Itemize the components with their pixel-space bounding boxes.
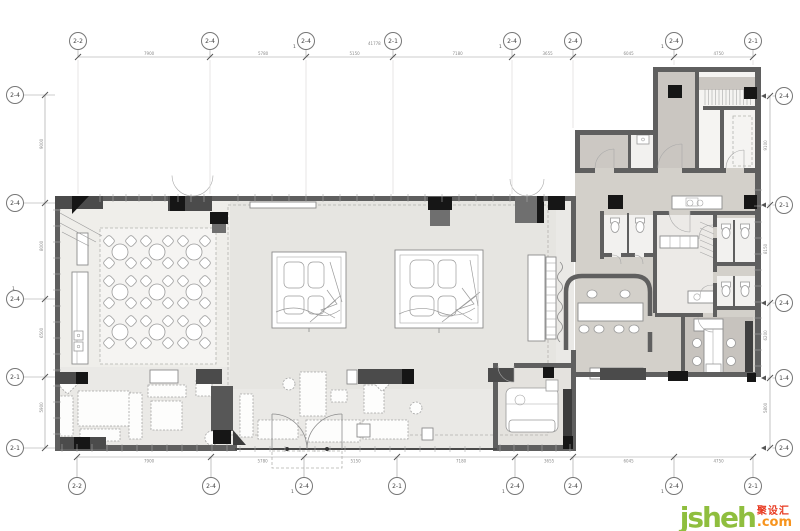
dim-left: 6500 bbox=[39, 327, 44, 338]
round-table bbox=[186, 244, 202, 260]
grid-bubble-label: 2-4 bbox=[10, 92, 20, 99]
grid-bubble: 2-4 bbox=[565, 33, 582, 61]
grid-bubble-label: 2-1 bbox=[10, 374, 20, 381]
chair bbox=[693, 339, 702, 348]
grid-bubble: 2-1 bbox=[745, 33, 762, 61]
band-room-a-floor bbox=[579, 135, 628, 168]
leader-arrow bbox=[761, 301, 766, 306]
entrance-mat-dashed bbox=[272, 451, 342, 468]
grid-bubble: 2-4 bbox=[7, 87, 56, 104]
grid-bubble: 2-4 bbox=[761, 440, 793, 457]
chair bbox=[594, 325, 604, 333]
chair bbox=[693, 357, 702, 366]
dim-right: 8150 bbox=[763, 243, 768, 254]
toilet-wc bbox=[741, 224, 750, 239]
grid-bubble: 2-41 bbox=[291, 454, 313, 495]
dim-right: 6200 bbox=[763, 330, 768, 341]
vip-side-table bbox=[546, 380, 558, 391]
grid-bubble: 2-41 bbox=[499, 33, 521, 61]
door-pivot bbox=[285, 447, 289, 451]
grid-bubble-label: 2-4 bbox=[568, 38, 578, 45]
grid-bubble-label: 2-4 bbox=[779, 300, 789, 307]
grid-bubble: 2-1 bbox=[745, 454, 762, 495]
vip-room-furniture bbox=[506, 380, 558, 432]
dim-top: 6045 bbox=[624, 51, 635, 56]
watermark: jsheh 聚设汇 .com bbox=[680, 502, 792, 529]
grid-bubble-label: 2-4 bbox=[507, 38, 517, 45]
grid-bubble-label: 2-4 bbox=[568, 483, 578, 490]
grid-bubble: 2-4 bbox=[202, 33, 219, 61]
floor-box bbox=[422, 428, 433, 440]
grid-bubble: 2-4 bbox=[761, 295, 793, 312]
dim-bottom: 7900 bbox=[144, 459, 155, 464]
lounge-item bbox=[148, 385, 186, 397]
grid-bubble: 2-41 bbox=[7, 286, 56, 308]
chair bbox=[614, 325, 624, 333]
grid-bubble-sub: 1 bbox=[293, 44, 296, 50]
grid-bubble-label: 2-2 bbox=[73, 38, 83, 45]
toilet-wc bbox=[722, 224, 731, 239]
wc-bowl bbox=[741, 286, 749, 297]
watermark-right: 聚设汇 .com bbox=[757, 502, 792, 529]
grid-bubble-label: 2-4 bbox=[301, 38, 311, 45]
grid-bubble: 2-1 bbox=[389, 454, 406, 495]
grid-bubble-label: 2-4 bbox=[779, 93, 789, 100]
dim-top: 5780 bbox=[258, 51, 269, 56]
dim-top: 5150 bbox=[350, 51, 361, 56]
round-table bbox=[112, 284, 128, 300]
grid-bubble: 2-2 bbox=[69, 454, 86, 495]
dim-overall: 41778 bbox=[368, 41, 381, 46]
dim-right: 5800 bbox=[763, 402, 768, 413]
floor-plan-page: 7900578051507180365560454750790057805150… bbox=[0, 0, 800, 531]
round-table bbox=[149, 244, 165, 260]
wc-bowl bbox=[722, 228, 730, 239]
dim-bottom: 7180 bbox=[456, 459, 467, 464]
chair bbox=[727, 339, 736, 348]
grid-bubble: 2-41 bbox=[661, 33, 683, 61]
grid-bubble-label: 2-4 bbox=[669, 38, 679, 45]
toilet-wc bbox=[722, 282, 731, 297]
round-table bbox=[149, 324, 165, 340]
dim-right: 9100 bbox=[763, 140, 768, 151]
lounge-item bbox=[300, 372, 326, 416]
grid-bubble-sub: 1 bbox=[499, 44, 502, 50]
band-fixture bbox=[637, 135, 649, 144]
grid-bubble: 2-2 bbox=[70, 33, 87, 61]
grid-bubble-label: 2-2 bbox=[72, 483, 82, 490]
grid-bubble-label: 2-4 bbox=[206, 483, 216, 490]
bar-outlet bbox=[74, 342, 83, 351]
island-detail bbox=[706, 364, 721, 373]
grid-bubble-label: 2-4 bbox=[10, 296, 20, 303]
bar-outlet bbox=[74, 331, 83, 340]
vanity-counter bbox=[660, 236, 698, 248]
grid-bubble-sub: 1 bbox=[12, 286, 15, 292]
round-table bbox=[186, 324, 202, 340]
round-table bbox=[186, 284, 202, 300]
lounge-item bbox=[258, 420, 298, 439]
wc-bowl bbox=[636, 222, 644, 233]
grid-bubble: 2-4 bbox=[761, 88, 793, 105]
dim-bottom: 5150 bbox=[351, 459, 362, 464]
dim-top: 7180 bbox=[453, 51, 464, 56]
floor-plan-drawing: 7900578051507180365560454750790057805150… bbox=[0, 0, 800, 531]
lounge-item bbox=[151, 401, 182, 430]
feature-square-2 bbox=[395, 250, 483, 333]
leader-arrow bbox=[761, 203, 766, 208]
dim-bottom: 4750 bbox=[714, 459, 725, 464]
dim-bottom: 5780 bbox=[258, 459, 269, 464]
chair bbox=[620, 290, 630, 298]
watermark-tld: .com bbox=[757, 517, 792, 529]
wc-bowl bbox=[611, 222, 619, 233]
chair bbox=[579, 325, 589, 333]
grid-bubble-label: 2-4 bbox=[10, 200, 20, 207]
dim-top: 7900 bbox=[144, 51, 155, 56]
chair bbox=[629, 325, 639, 333]
conference-table bbox=[578, 303, 643, 321]
dim-left: 5900 bbox=[39, 402, 44, 413]
round-table bbox=[112, 324, 128, 340]
grid-bubble: 2-4 bbox=[565, 454, 582, 495]
grid-bubble: 2-1 bbox=[761, 197, 793, 214]
grid-bubble: 1-4 bbox=[761, 370, 793, 387]
grid-bubble-label: 2-1 bbox=[10, 445, 20, 452]
dim-left: 9000 bbox=[39, 138, 44, 149]
dim-bottom: 6045 bbox=[624, 459, 635, 464]
wall-bench bbox=[250, 202, 316, 208]
round-table bbox=[112, 244, 128, 260]
grid-bubble-label: 1-4 bbox=[779, 375, 789, 382]
leader-arrow bbox=[761, 94, 766, 99]
grid-bubble-label: 2-1 bbox=[748, 38, 758, 45]
vip-sofa-chaise bbox=[509, 420, 555, 432]
wc-bowl bbox=[741, 228, 749, 239]
dim-top: 4750 bbox=[714, 51, 725, 56]
grid-bubble-sub: 1 bbox=[661, 489, 664, 495]
grid-bubble: 2-41 bbox=[293, 33, 315, 61]
lounge-item bbox=[306, 420, 360, 442]
lounge-item bbox=[78, 391, 130, 426]
grid-bubble-sub: 1 bbox=[661, 44, 664, 50]
grid-bubble: 2-41 bbox=[661, 454, 683, 495]
leader-arrow bbox=[761, 376, 766, 381]
lounge-item bbox=[410, 402, 422, 414]
round-table bbox=[149, 284, 165, 300]
toilet-wc bbox=[611, 218, 620, 233]
grid-bubble-label: 2-1 bbox=[388, 38, 398, 45]
toilet-wc bbox=[636, 218, 645, 233]
floor-box bbox=[357, 424, 370, 437]
grid-bubble: 2-1 bbox=[385, 33, 402, 61]
grid-bubble-label: 2-1 bbox=[392, 483, 402, 490]
low-cabinet bbox=[150, 370, 178, 383]
hall-top-door-arc bbox=[510, 179, 544, 196]
grid-bubble-label: 2-4 bbox=[779, 445, 789, 452]
toilet-wc bbox=[741, 282, 750, 297]
dim-left: 8000 bbox=[39, 240, 44, 251]
dim-bottom: 3655 bbox=[544, 459, 555, 464]
grid-bubble-label: 2-4 bbox=[205, 38, 215, 45]
watermark-brand: jsheh bbox=[680, 507, 755, 529]
grid-bubble-label: 2-1 bbox=[748, 483, 758, 490]
grid-bubble-label: 2-1 bbox=[779, 202, 789, 209]
grid-bubble-sub: 1 bbox=[502, 489, 505, 495]
grid-bubble: 2-4 bbox=[7, 195, 56, 212]
grid-bubble-label: 2-4 bbox=[669, 483, 679, 490]
lounge-item bbox=[331, 390, 347, 402]
lounge-item bbox=[283, 378, 295, 390]
door-pivot bbox=[325, 447, 329, 451]
grid-bubble-label: 2-4 bbox=[299, 483, 309, 490]
low-cabinet bbox=[347, 370, 357, 384]
grid-bubble-label: 2-4 bbox=[510, 483, 520, 490]
grid-bubble: 2-4 bbox=[203, 454, 220, 495]
lounge-item bbox=[240, 394, 253, 437]
grid-bubble-sub: 1 bbox=[291, 489, 294, 495]
dim-top: 3655 bbox=[543, 51, 554, 56]
leader-arrow bbox=[761, 446, 766, 451]
dining-door-arc bbox=[172, 176, 213, 197]
kitchenette-counter bbox=[688, 291, 714, 303]
chair bbox=[727, 357, 736, 366]
feature-square-1 bbox=[272, 252, 346, 332]
lounge-item bbox=[129, 393, 142, 439]
wc-bowl bbox=[722, 286, 730, 297]
chair bbox=[587, 290, 597, 298]
grid-bubble: 2-41 bbox=[502, 454, 524, 495]
grid-bubble: 2-1 bbox=[7, 440, 56, 457]
service-cabinet bbox=[77, 233, 88, 265]
display-shelf bbox=[528, 255, 545, 341]
dining-tables bbox=[103, 235, 212, 350]
grid-bubble: 2-1 bbox=[7, 369, 56, 386]
